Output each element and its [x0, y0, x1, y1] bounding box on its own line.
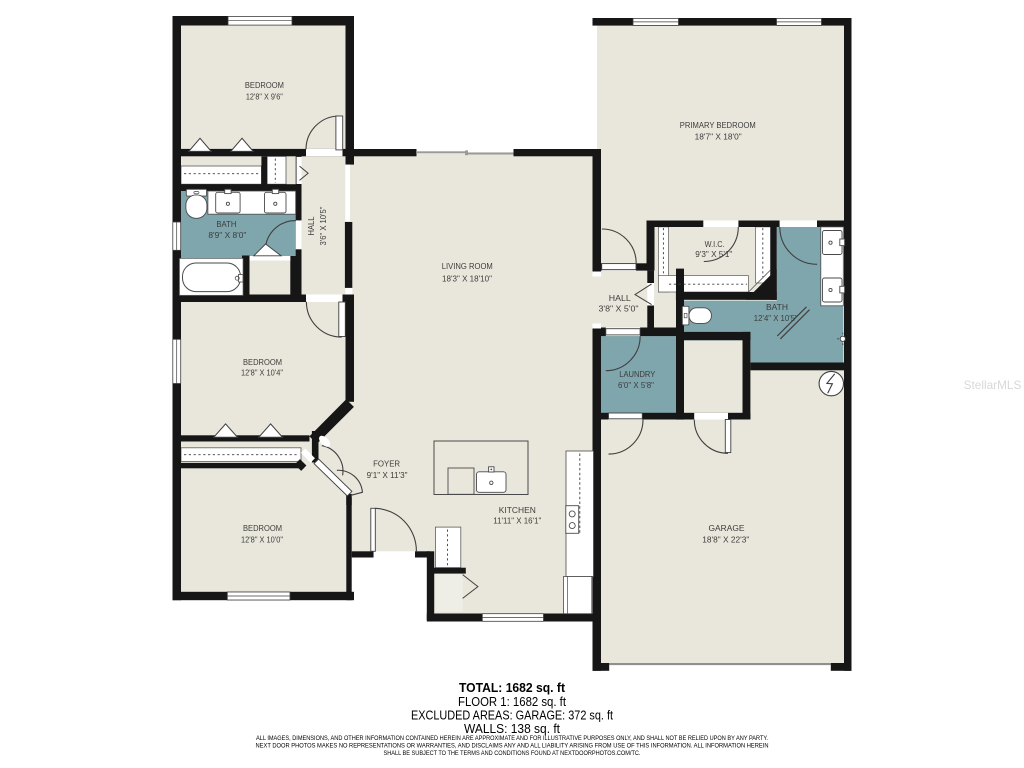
svg-text:12'8" X 9'6": 12'8" X 9'6" — [246, 92, 283, 101]
svg-text:12'4" X 10'5": 12'4" X 10'5" — [754, 314, 798, 323]
svg-text:HALL: HALL — [609, 294, 632, 303]
svg-text:BEDROOM: BEDROOM — [245, 81, 284, 90]
svg-text:W.I.C.: W.I.C. — [705, 240, 725, 249]
svg-text:11'11" X 16'1": 11'11" X 16'1" — [493, 517, 541, 526]
svg-text:8'9" X 8'0": 8'9" X 8'0" — [208, 231, 246, 240]
svg-text:HALL: HALL — [307, 216, 316, 236]
svg-text:BEDROOM: BEDROOM — [243, 524, 282, 533]
svg-text:FLOOR 1: 1682 sq. ft: FLOOR 1: 1682 sq. ft — [458, 694, 566, 709]
svg-text:PRIMARY BEDROOM: PRIMARY BEDROOM — [680, 121, 756, 130]
svg-text:LIVING ROOM: LIVING ROOM — [442, 262, 493, 271]
svg-text:GARAGE: GARAGE — [709, 524, 745, 533]
svg-text:6'0" X 5'8": 6'0" X 5'8" — [618, 381, 654, 390]
svg-text:BATH: BATH — [216, 220, 236, 229]
svg-text:SHALL BE SUBJECT TO THE TERMS: SHALL BE SUBJECT TO THE TERMS AND CONDIT… — [384, 750, 641, 757]
svg-text:18'8" X 22'3": 18'8" X 22'3" — [702, 535, 749, 544]
svg-text:12'8" X 10'4": 12'8" X 10'4" — [241, 368, 283, 377]
svg-text:LAUNDRY: LAUNDRY — [619, 370, 656, 379]
svg-text:12'8" X 10'0": 12'8" X 10'0" — [241, 535, 283, 544]
svg-text:ALL IMAGES, DIMENSIONS, AND OT: ALL IMAGES, DIMENSIONS, AND OTHER INFORM… — [256, 735, 768, 742]
svg-text:NEXT DOOR PHOTOS MAKES NO REPR: NEXT DOOR PHOTOS MAKES NO REPRESENTATION… — [256, 743, 769, 750]
svg-text:StellarMLS: StellarMLS — [964, 378, 1022, 392]
svg-text:9'1" X 11'3": 9'1" X 11'3" — [367, 471, 408, 480]
svg-text:9'3" X 5'1": 9'3" X 5'1" — [695, 250, 732, 259]
svg-text:3'8" X 5'0": 3'8" X 5'0" — [599, 305, 639, 314]
svg-text:KITCHEN: KITCHEN — [499, 506, 536, 515]
svg-text:BEDROOM: BEDROOM — [243, 358, 282, 367]
svg-text:18'3" X 18'10": 18'3" X 18'10" — [442, 274, 492, 283]
svg-text:TOTAL: 1682 sq. ft: TOTAL: 1682 sq. ft — [459, 680, 566, 695]
svg-text:WALLS: 138 sq. ft: WALLS: 138 sq. ft — [464, 721, 560, 736]
svg-text:18'7" X 18'0": 18'7" X 18'0" — [695, 132, 742, 141]
svg-text:BATH: BATH — [766, 303, 788, 312]
svg-text:FOYER: FOYER — [373, 459, 400, 468]
svg-text:3'6" X 10'5": 3'6" X 10'5" — [319, 206, 328, 245]
